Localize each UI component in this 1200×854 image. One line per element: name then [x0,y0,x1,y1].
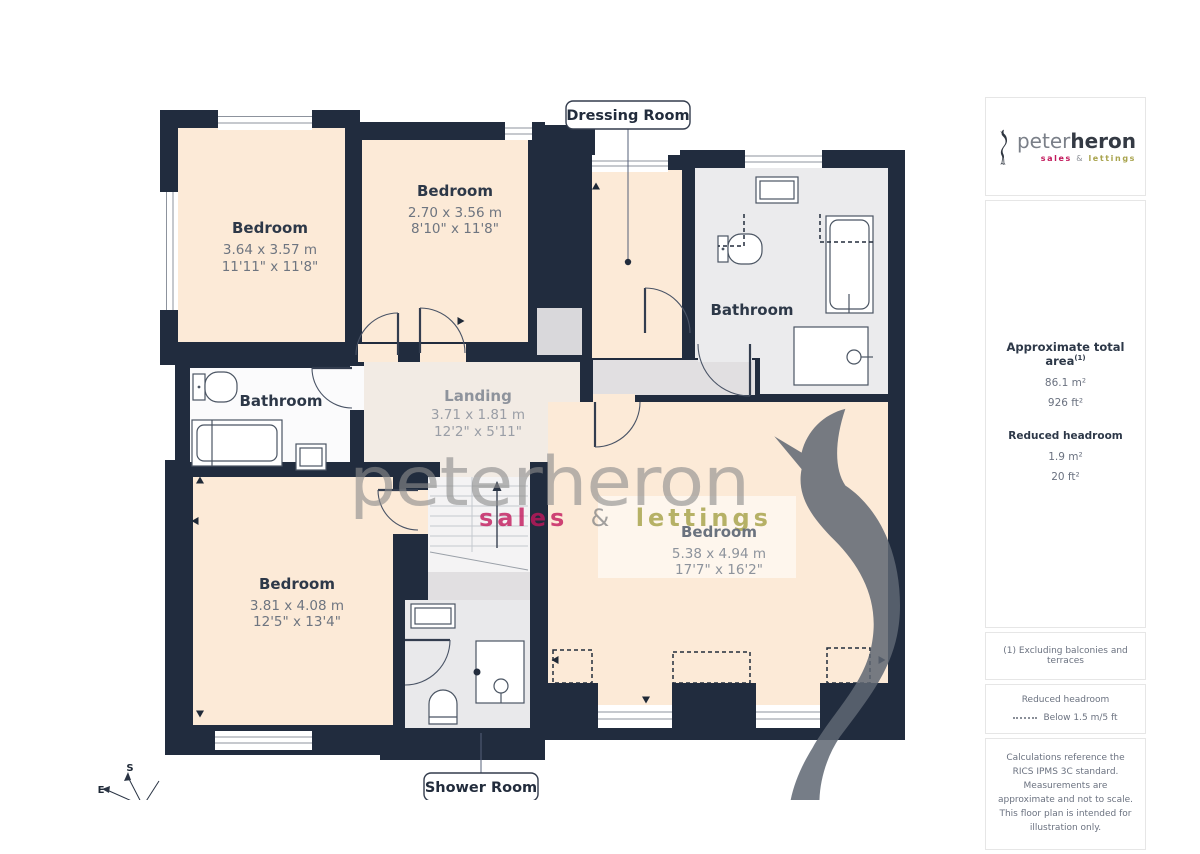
svg-text:12'2" x 5'11": 12'2" x 5'11" [434,424,522,440]
brand-name-light: peter [1017,129,1070,153]
sink-left-bathroom [296,444,326,470]
heron-logo-icon [995,129,1010,165]
svg-text:Bathroom: Bathroom [239,392,322,410]
svg-text:3.64 x 3.57 m: 3.64 x 3.57 m [223,242,317,258]
svg-text:2.70 x 3.56 m: 2.70 x 3.56 m [408,205,502,221]
area-title-text: Approximate total area [1007,340,1125,368]
toilet-top-bathroom [718,234,762,264]
bathtub-left-bathroom [192,420,282,466]
compass: S E [98,763,159,800]
svg-text:Landing: Landing [444,387,512,405]
shower-top-bathroom [794,327,873,385]
svg-text:12'5" x 13'4": 12'5" x 13'4" [253,614,341,630]
svg-text:3.71 x 1.81 m: 3.71 x 1.81 m [431,407,525,423]
footnote-card: (1) Excluding balconies and terraces [985,632,1146,680]
info-sidebar: peterheron sales & lettings Approximate … [985,97,1146,854]
room-label-bedroom-top-left: Bedroom 3.64 x 3.57 m 11'11" x 11'8" [222,219,319,275]
brand-name-bold: heron [1070,129,1136,153]
room-label-bathroom-top: Bathroom [710,301,793,319]
bathtub-top-bathroom [826,216,873,313]
headroom-imperial: 20 ft² [1051,468,1080,488]
dashed-line-sample [1013,717,1037,719]
reduced-headroom-legend: Reduced headroom Below 1.5 m/5 ft [985,684,1146,734]
svg-text:11'11" x 11'8": 11'11" x 11'8" [222,259,319,275]
area-metric: 86.1 m² [1045,374,1086,394]
legend-title: Reduced headroom [994,695,1137,705]
room-label-bedroom-right: Bedroom 5.38 x 4.94 m 17'7" x 16'2" [672,523,766,578]
toilet-shower-room [429,690,457,724]
svg-text:5.38 x 4.94 m: 5.38 x 4.94 m [672,546,766,562]
room-label-bedroom-top-middle: Bedroom 2.70 x 3.56 m 8'10" x 11'8" [408,182,502,237]
room-label-bathroom-left: Bathroom [239,392,322,410]
svg-text:Bedroom: Bedroom [259,575,335,593]
compass-south-label: S [126,763,133,774]
shower-cubicle [474,641,525,703]
area-title: Approximate total area(1) [986,340,1145,368]
room-label-landing: Landing 3.71 x 1.81 m 12'2" x 5'11" [431,387,525,440]
brand-tagline-sales: sales [1041,154,1072,163]
toilet-left-bathroom [193,372,237,402]
legend-value: Below 1.5 m/5 ft [1043,713,1117,723]
callout-dressing-room-label: Dressing Room [566,108,689,124]
svg-text:3.81 x 4.08 m: 3.81 x 4.08 m [250,598,344,614]
sink-top-bathroom [756,177,798,203]
svg-text:8'10" x 11'8": 8'10" x 11'8" [411,221,499,237]
headroom-metric: 1.9 m² [1048,448,1082,468]
disclaimer-card: Calculations reference the RICS IPMS 3C … [985,738,1146,850]
callout-shower-room-label: Shower Room [425,780,537,796]
brand-tagline-lettings: lettings [1088,154,1136,163]
compass-east-label: E [98,785,105,796]
svg-text:Bathroom: Bathroom [710,301,793,319]
brand-logo-text: peterheron sales & lettings [1017,131,1136,163]
brand-tagline-amp: & [1076,154,1084,163]
watermark-sales: sales [479,504,568,532]
svg-text:Bedroom: Bedroom [681,523,757,541]
svg-text:17'7" x 16'2": 17'7" x 16'2" [675,562,763,578]
svg-text:Bedroom: Bedroom [417,182,493,200]
headroom-title: Reduced headroom [1008,430,1122,442]
area-imperial: 926 ft² [1048,394,1083,414]
svg-text:Bedroom: Bedroom [232,219,308,237]
room-label-bedroom-bottom-left: Bedroom 3.81 x 4.08 m 12'5" x 13'4" [250,575,344,630]
area-summary-card: Approximate total area(1) 86.1 m² 926 ft… [985,200,1146,628]
area-footnote-marker: (1) [1074,354,1085,362]
watermark-amp: & [591,504,614,532]
floorplan-page: peterheron sales & lettings Bedroom 3.64… [0,0,1200,800]
brand-logo: peterheron sales & lettings [985,97,1146,196]
sink-shower-room [411,604,455,628]
